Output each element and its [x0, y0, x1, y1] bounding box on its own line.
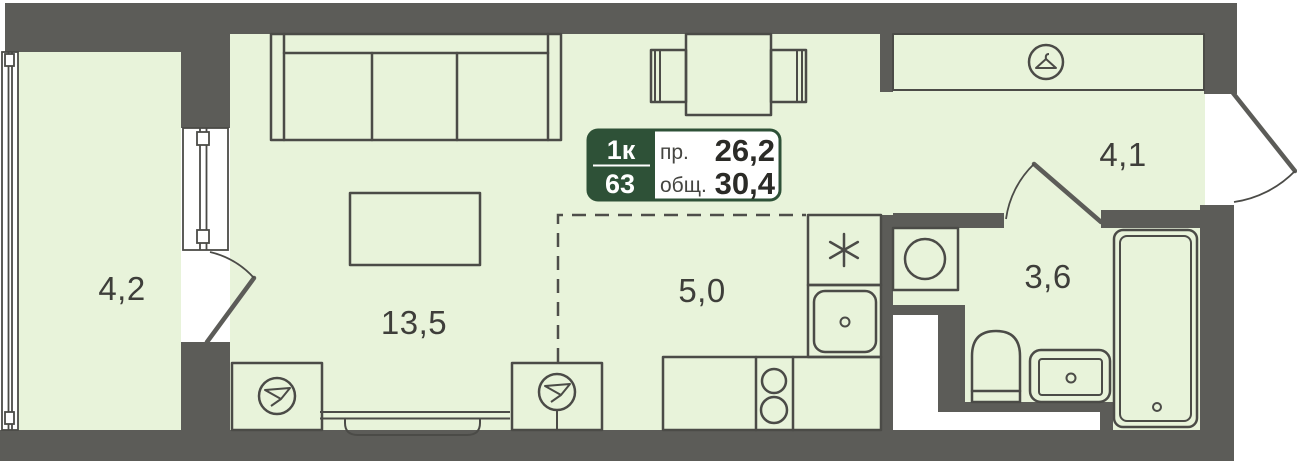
balcony-glazing — [2, 52, 18, 430]
reduced-area-label: пр. — [660, 141, 689, 164]
unit-type: 1к — [607, 135, 636, 165]
entrance-door — [1233, 93, 1295, 202]
window-post — [197, 132, 209, 145]
living-room-floor — [230, 34, 880, 430]
door-leaf — [1233, 93, 1295, 171]
wall-shaft-right — [938, 315, 965, 402]
bathroom-door-gap-floor — [1004, 213, 1101, 228]
balcony-floor — [18, 52, 181, 430]
glazing-post — [5, 412, 14, 424]
wall-bath-right — [1200, 205, 1234, 430]
wall-balcony-divider-upper — [181, 34, 230, 128]
wall-bath-top-right — [1101, 210, 1205, 228]
vent-shaft — [893, 315, 938, 430]
bathroom-area-label: 3,6 — [1024, 258, 1071, 295]
area-info-badge: 1к 63 пр. 26,2 общ. 30,4 — [588, 130, 780, 201]
balcony-window-unit — [183, 128, 228, 250]
wall-shaft-top — [893, 305, 965, 315]
total-area-label: общ. — [660, 174, 707, 197]
balcony-area-label: 4,2 — [98, 270, 145, 307]
floor-plan: 4,2 13,5 5,0 3,6 4,1 1к 63 пр. 26,2 общ.… — [0, 0, 1297, 466]
glazing-post — [5, 54, 14, 66]
wall-bath-south-bar — [938, 402, 1108, 412]
bathtub-zone-floor — [1113, 228, 1201, 430]
unit-number: 63 — [605, 169, 635, 199]
floor-plan-page: 4,2 13,5 5,0 3,6 4,1 1к 63 пр. 26,2 общ.… — [0, 0, 1297, 466]
total-area-value: 30,4 — [715, 166, 776, 201]
outer-notch — [938, 412, 1100, 430]
wall-bath-top-left — [893, 213, 1004, 228]
wall-room-hall-stub — [880, 34, 893, 92]
glazing-frame — [2, 52, 18, 430]
kitchen-area-label: 5,0 — [678, 272, 725, 309]
passage-floor — [880, 92, 893, 215]
window-post — [197, 230, 209, 243]
living-room-area-label: 13,5 — [381, 304, 447, 341]
wall-balcony-divider-lower — [181, 342, 230, 430]
door-swing-arc — [1234, 171, 1295, 202]
wall-right-upper — [1204, 3, 1237, 94]
wall-bottom — [0, 430, 1234, 461]
reduced-area-value: 26,2 — [715, 133, 775, 168]
wall-bath-south-block — [1100, 402, 1113, 430]
hallway-area-label: 4,1 — [1099, 136, 1146, 173]
